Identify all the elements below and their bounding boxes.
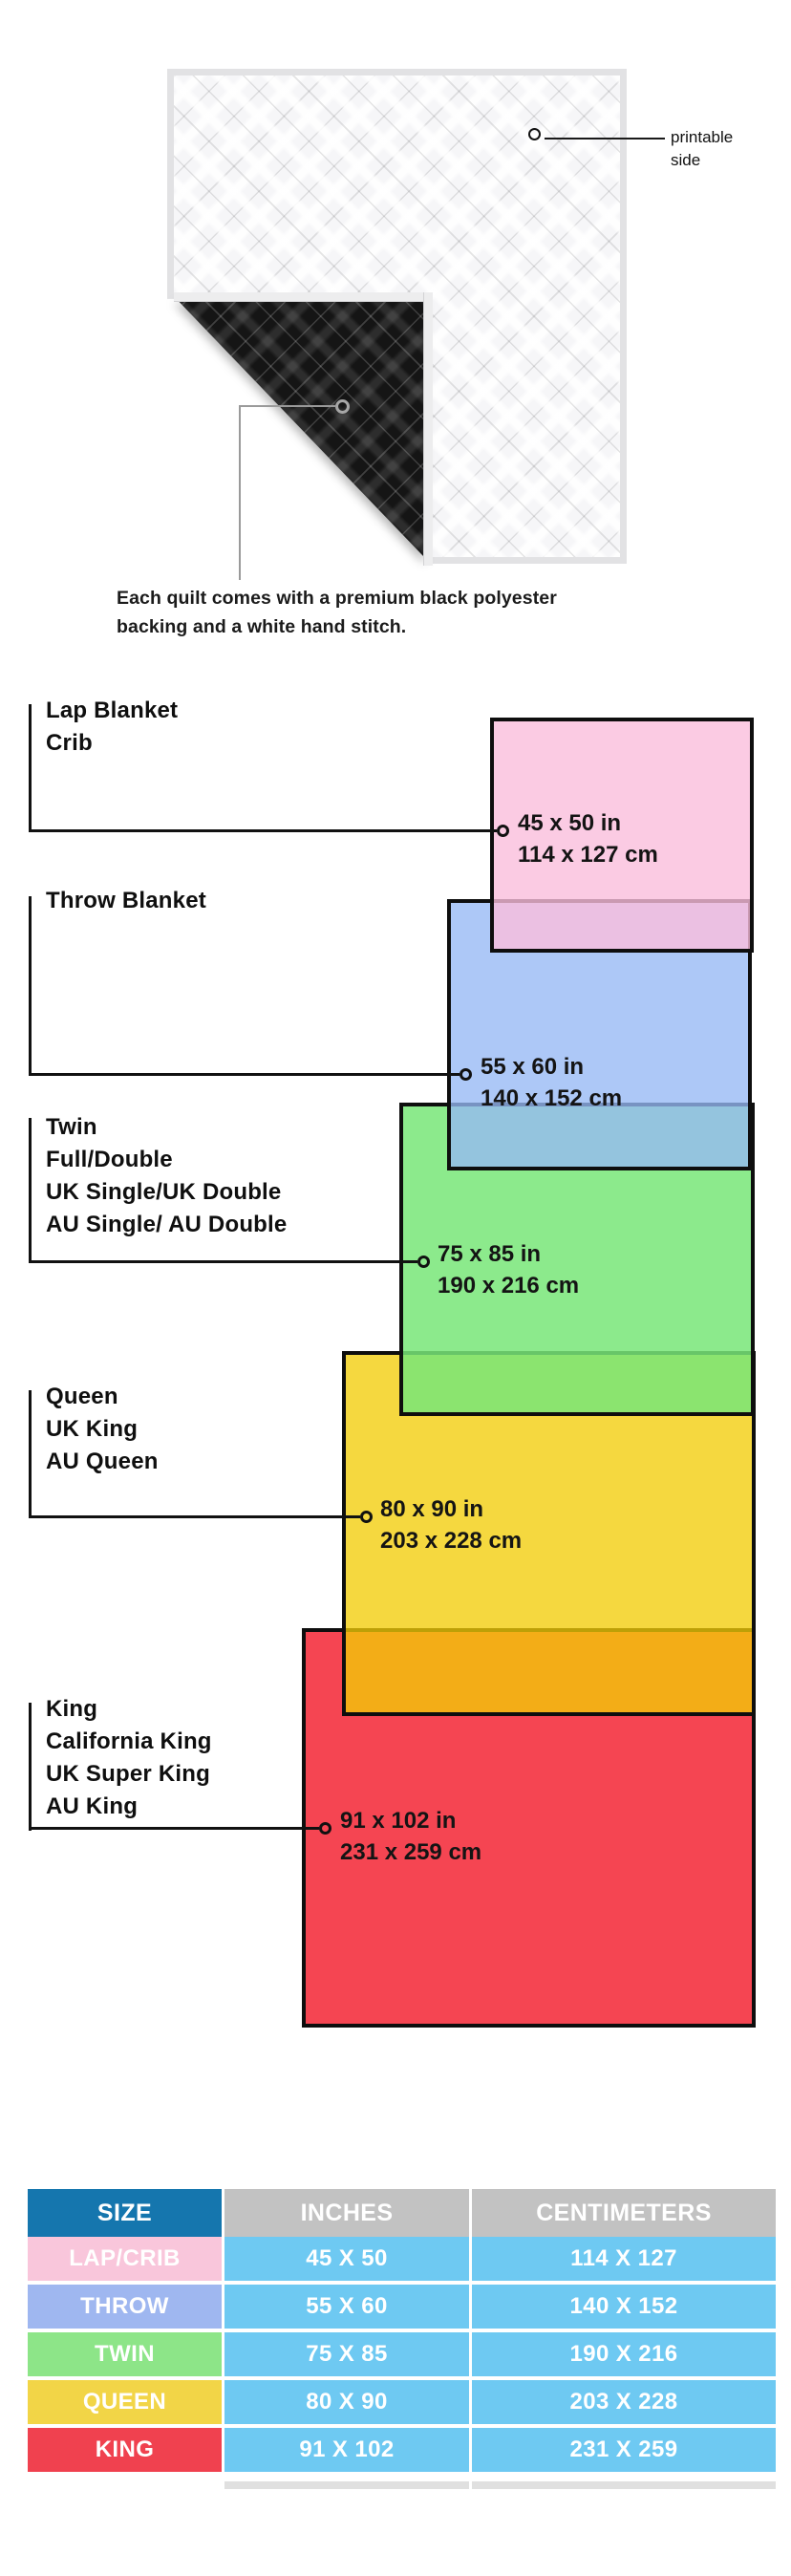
leader-v-king: [29, 1703, 32, 1831]
table-row-queen-inches: 80 X 90: [224, 2380, 469, 2424]
table-row-twin-size: TWIN: [28, 2332, 222, 2376]
table-header-inches: INCHES: [224, 2189, 469, 2237]
dot-queen: [360, 1511, 373, 1523]
quilt-black-backing: [167, 69, 627, 564]
table-header-centimeters: CENTIMETERS: [472, 2189, 776, 2237]
table-header-size: SIZE: [28, 2189, 222, 2237]
table-row-queen-size: QUEEN: [28, 2380, 222, 2424]
table-row-lap-cm: 114 X 127: [472, 2237, 776, 2281]
printable-side-label-line2: side: [671, 149, 733, 172]
leader-h-throw: [29, 1073, 460, 1076]
printable-side-label-line1: printable: [671, 126, 733, 149]
quilt-caption-line1: Each quilt comes with a premium black po…: [117, 584, 557, 612]
printable-side-marker-icon: [528, 128, 541, 140]
label-twin: Twin Full/Double UK Single/UK Double AU …: [46, 1111, 287, 1241]
quilt-fold-wrap: [167, 69, 627, 564]
size-guide-page: printable side Each quilt comes with a p…: [0, 0, 791, 2576]
label-lap-crib: Lap Blanket Crib: [46, 695, 178, 760]
label-king: King California King UK Super King AU Ki…: [46, 1693, 212, 1823]
dims-lap: 45 x 50 in 114 x 127 cm: [518, 807, 658, 870]
table-row-lap-inches: 45 X 50: [224, 2237, 469, 2281]
dims-king: 91 x 102 in 231 x 259 cm: [340, 1805, 481, 1868]
leader-v-lap: [29, 704, 32, 832]
printable-side-label: printable side: [671, 126, 733, 172]
dims-queen: 80 x 90 in 203 x 228 cm: [380, 1493, 522, 1556]
leader-h-twin: [29, 1260, 417, 1263]
dims-twin: 75 x 85 in 190 x 216 cm: [438, 1238, 579, 1301]
quilt-fold-binding-side: [423, 292, 433, 566]
dot-twin: [417, 1256, 430, 1268]
table-row-throw-inches: 55 X 60: [224, 2285, 469, 2329]
backing-leader-line-h: [239, 405, 336, 407]
table-row-king-inches: 91 X 102: [224, 2428, 469, 2472]
quilt-caption: Each quilt comes with a premium black po…: [117, 584, 557, 641]
table-row-king-size: KING: [28, 2428, 222, 2472]
backing-marker-icon: [335, 399, 350, 414]
table-row-twin-inches: 75 X 85: [224, 2332, 469, 2376]
quilt-caption-line2: backing and a white hand stitch.: [117, 612, 557, 641]
leader-v-throw: [29, 896, 32, 1076]
table-row-lap-size: LAP/CRIB: [28, 2237, 222, 2281]
leader-v-queen: [29, 1390, 32, 1518]
dot-throw: [460, 1068, 472, 1081]
dot-king: [319, 1822, 331, 1835]
label-throw: Throw Blanket: [46, 885, 206, 917]
table-row-queen-cm: 203 X 228: [472, 2380, 776, 2424]
table-row-twin-cm: 190 X 216: [472, 2332, 776, 2376]
leader-h-queen: [29, 1515, 360, 1518]
table-shadow-inches: [224, 2481, 469, 2489]
label-queen: Queen UK King AU Queen: [46, 1381, 159, 1478]
leader-h-king: [29, 1827, 319, 1830]
quilt-fold-binding-top: [174, 292, 432, 302]
dims-throw: 55 x 60 in 140 x 152 cm: [481, 1051, 622, 1114]
leader-v-twin: [29, 1118, 32, 1263]
table-row-throw-size: THROW: [28, 2285, 222, 2329]
size-table: SIZE INCHES CENTIMETERS LAP/CRIB 45 X 50…: [28, 2189, 776, 2472]
backing-leader-line-v: [239, 405, 241, 580]
leader-h-lap: [29, 829, 497, 832]
dot-lap: [497, 825, 509, 837]
printable-side-leader-line: [545, 138, 665, 140]
table-row-king-cm: 231 X 259: [472, 2428, 776, 2472]
table-shadow-cm: [472, 2481, 776, 2489]
table-row-throw-cm: 140 X 152: [472, 2285, 776, 2329]
